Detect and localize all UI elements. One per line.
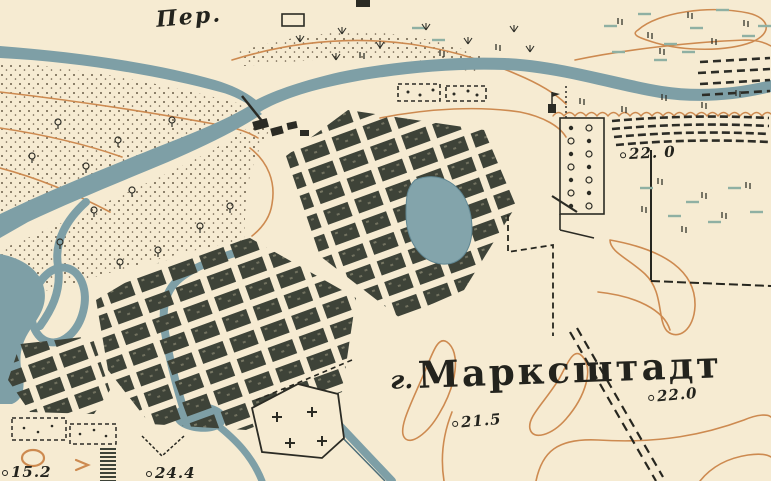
ferry-house-outline	[282, 14, 304, 26]
spot-height-marker	[452, 421, 459, 428]
spot-height-marker	[620, 152, 626, 158]
map-artwork	[0, 0, 771, 481]
hatched-strip	[100, 448, 116, 481]
town-label-prefix: г.	[390, 365, 414, 395]
spot-height-15-2: 15.2	[2, 463, 52, 481]
spot-height-marker	[146, 471, 152, 477]
spot-height-marker	[2, 470, 8, 476]
spot-height-24-4: 24.4	[146, 464, 196, 481]
spot-height-marker	[648, 395, 655, 402]
spot-height-22-0-east: 22. 0	[620, 143, 677, 164]
map-canvas: Пер. г.Марксштадт 22. 0 21.5 22.0 15.2 2…	[0, 0, 771, 481]
